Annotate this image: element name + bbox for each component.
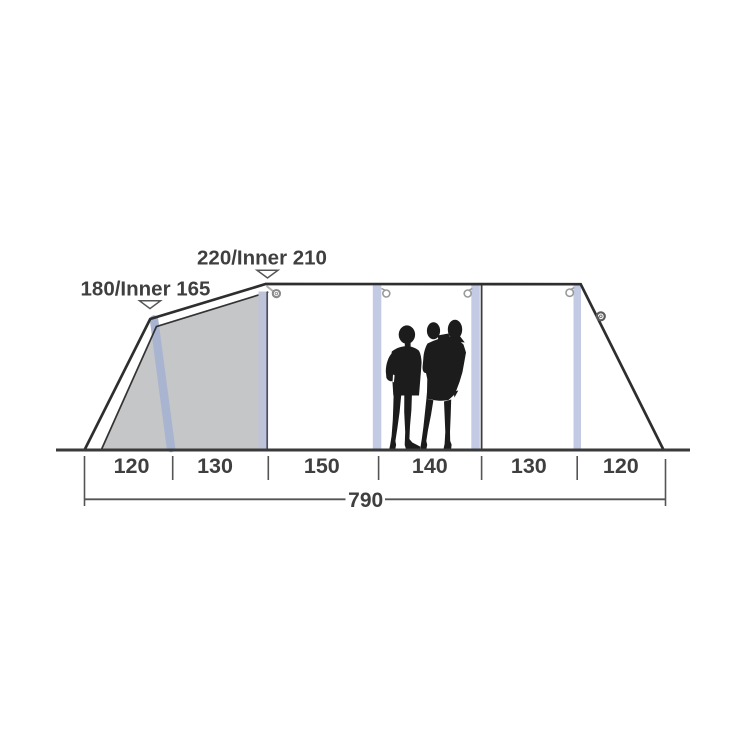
- svg-text:130: 130: [511, 454, 547, 478]
- svg-text:130: 130: [197, 454, 233, 478]
- svg-text:180/Inner 165: 180/Inner 165: [81, 278, 211, 301]
- svg-text:120: 120: [114, 454, 150, 478]
- svg-text:220/Inner 210: 220/Inner 210: [197, 247, 327, 270]
- svg-text:120: 120: [603, 454, 639, 478]
- svg-text:790: 790: [348, 489, 383, 512]
- svg-text:140: 140: [412, 454, 448, 478]
- svg-text:150: 150: [304, 454, 340, 478]
